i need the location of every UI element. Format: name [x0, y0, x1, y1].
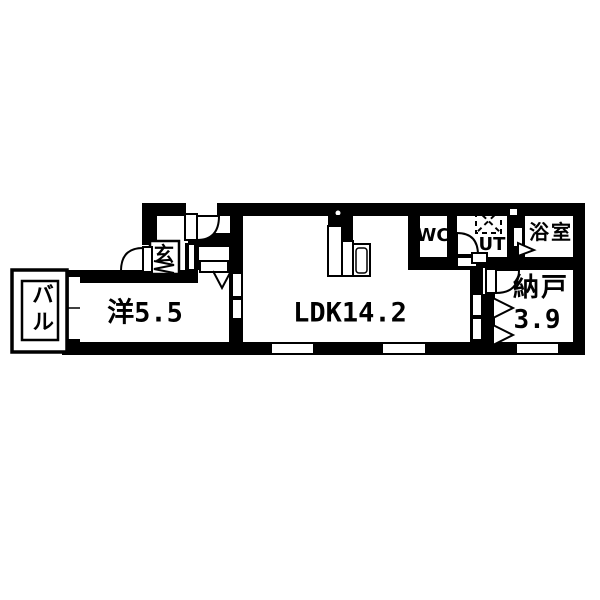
storage-door-leaf — [486, 269, 496, 293]
storage-fold-door-triangle-1 — [493, 298, 513, 318]
hall-door-swing-arc — [121, 248, 143, 271]
kitchen-unit — [328, 215, 370, 276]
balcony-label: バル — [29, 283, 51, 337]
window-south-1 — [272, 344, 313, 353]
shoe-cabinet-slit-2 — [189, 245, 194, 269]
window-south-2 — [383, 344, 425, 353]
kitchen-sink — [356, 248, 367, 273]
floorplan: バル 洋5.5 玄 LDK14.2 WC UT 浴室 納戸 3.9 — [0, 0, 600, 600]
ldk-storage-panel-1 — [472, 294, 482, 316]
ldk-storage-panel-2 — [472, 318, 482, 340]
storage-label: 納戸 — [513, 275, 569, 301]
ldk-label: LDK14.2 — [293, 300, 407, 327]
utility-label: UT — [479, 236, 506, 254]
bathroom-label: 浴室 — [529, 222, 573, 242]
shoe-cabinet-upper — [198, 246, 230, 261]
western-sliding-panel-1 — [232, 273, 242, 297]
storage-area-label: 3.9 — [514, 307, 561, 333]
western-room-label: 洋5.5 — [107, 300, 183, 327]
wall-top-main — [217, 203, 585, 216]
window-south-storage — [517, 344, 558, 353]
shoe-cabinets — [198, 246, 230, 272]
western-sliding-panel-2 — [232, 299, 242, 319]
entrance-label: 玄 — [154, 244, 174, 264]
kitchen-counter-2 — [342, 241, 353, 276]
wall-bottom — [62, 342, 585, 355]
bath-door-triangle — [518, 243, 534, 256]
kitchen-counter-1 — [328, 226, 342, 276]
wall-dot-bath — [510, 209, 517, 215]
wc-door-swing-arc — [457, 233, 478, 255]
wall-dot-kitchen — [336, 211, 341, 216]
entry-door-leaf — [185, 214, 197, 240]
wc-label: WC — [416, 227, 449, 245]
hall-door-leaf — [143, 247, 152, 272]
shoe-cabinet-lower — [200, 261, 228, 272]
shoe-cabinet-slit-1 — [180, 243, 185, 270]
entrance-floor-2 — [157, 216, 188, 243]
wall-entrance-left — [142, 203, 157, 245]
wall-right — [573, 203, 585, 355]
